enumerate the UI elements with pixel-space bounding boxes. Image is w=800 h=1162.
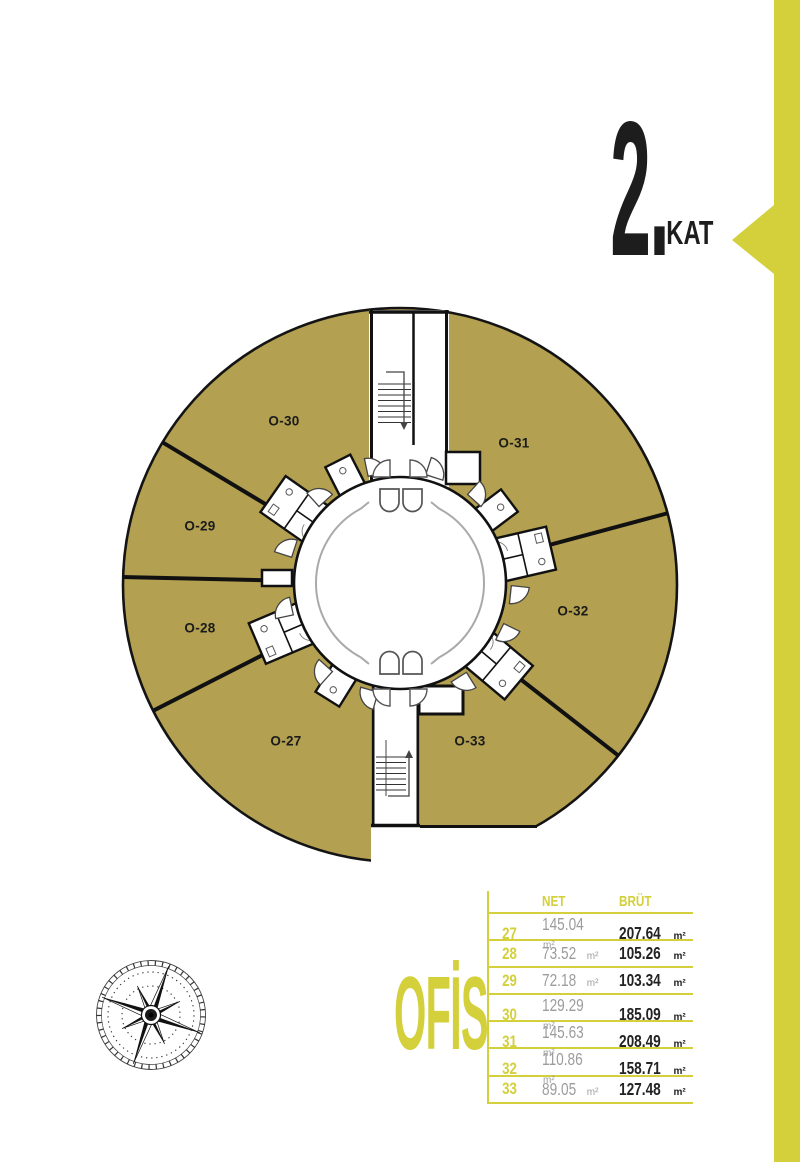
brochure-page: 2. KAT: [0, 0, 800, 1162]
unit-number: 32: [489, 1059, 529, 1079]
table-row: 28 73.52m² 105.26m²: [489, 941, 693, 968]
brut-area: 208.49m²: [606, 1031, 693, 1052]
net-header: NET: [529, 893, 606, 911]
floor-suffix: KAT: [666, 220, 713, 246]
unit-label-o30: O-30: [268, 414, 299, 429]
table-row: 32 110.86m² 158.71m²: [489, 1049, 693, 1076]
unit-label-o33: O-33: [454, 734, 485, 749]
table-row: 33 89.05m² 127.48m²: [489, 1077, 693, 1104]
brut-area: 103.34m²: [606, 970, 693, 991]
floor-number: 2.: [610, 118, 668, 260]
brut-area: 158.71m²: [606, 1058, 693, 1079]
brut-area: 127.48m²: [606, 1079, 693, 1100]
unit-number: 27: [489, 924, 529, 944]
net-area: 73.52m²: [529, 943, 606, 964]
table-row: 27 145.04m² 207.64m²: [489, 914, 693, 941]
unit-number: 31: [489, 1032, 529, 1052]
compass-rose-icon: [93, 957, 209, 1073]
unit-number: 29: [489, 971, 529, 991]
table-header-row: NET BRÜT: [489, 891, 693, 914]
net-area: 72.18m²: [529, 970, 606, 991]
core-circle: [294, 477, 506, 689]
unit-label-o28: O-28: [184, 621, 215, 636]
west-notch: [262, 570, 292, 586]
brut-area: 185.09m²: [606, 1004, 693, 1025]
unit-label-o29: O-29: [184, 519, 215, 534]
unit-label-o32: O-32: [557, 604, 588, 619]
unit-number: 30: [489, 1005, 529, 1025]
area-table: NET BRÜT 27 145.04m² 207.64m² 28 73.52m²…: [487, 891, 693, 1104]
table-row: 30 129.29m² 185.09m²: [489, 995, 693, 1022]
unit-label-o31: O-31: [498, 436, 529, 451]
ribbon-arrow-icon: [732, 205, 774, 274]
floor-plan-drawing: [0, 300, 800, 880]
legend-title: OFİS: [394, 966, 488, 1062]
unit-number: 28: [489, 944, 529, 964]
table-row: 31 145.63m² 208.49m²: [489, 1022, 693, 1049]
net-area: 89.05m²: [529, 1079, 606, 1100]
unit-label-o27: O-27: [270, 734, 301, 749]
brut-area: 105.26m²: [606, 943, 693, 964]
brut-header: BRÜT: [606, 893, 693, 911]
brut-area: 207.64m²: [606, 923, 693, 944]
table-row: 29 72.18m² 103.34m²: [489, 968, 693, 995]
unit-number: 33: [489, 1079, 529, 1099]
